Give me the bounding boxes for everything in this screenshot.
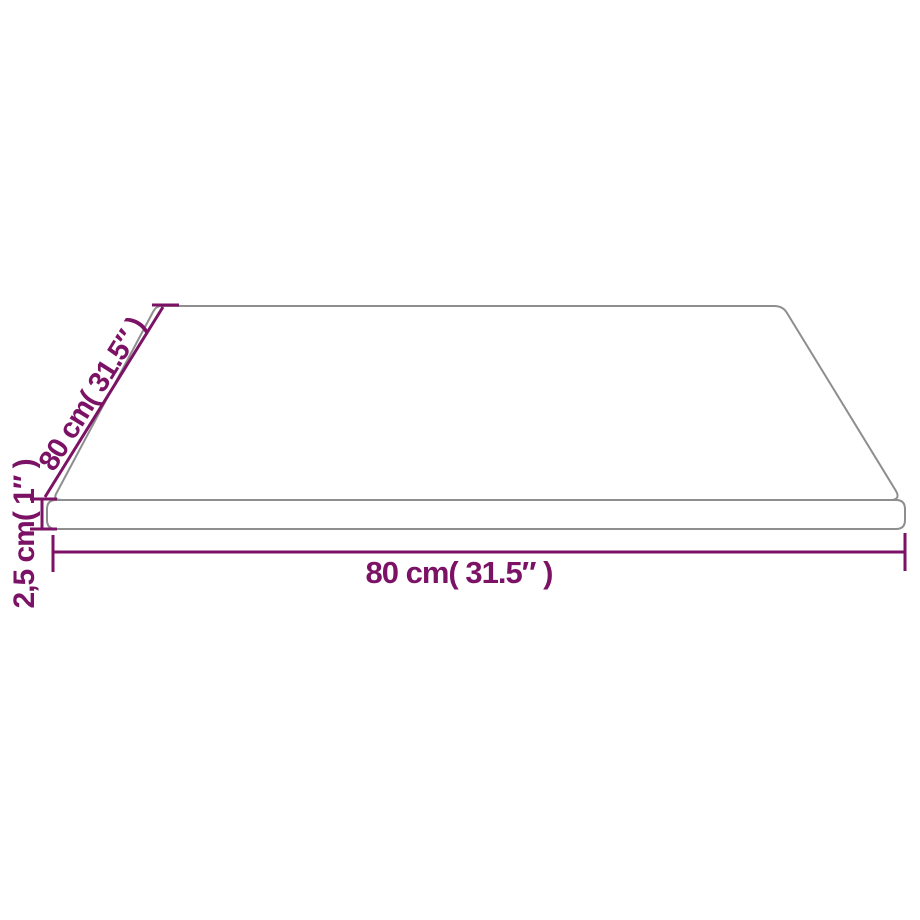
dimension-diagram: 80 cm( 31.5″ ) 2,5 cm( 1″ ) 80 cm( 31.5″… — [0, 0, 920, 920]
width-dimension-label: 80 cm( 31.5″ ) — [366, 555, 553, 590]
panel-front-face — [47, 500, 905, 529]
panel-top-face — [55, 306, 897, 500]
thickness-dimension-label: 2,5 cm( 1″ ) — [8, 459, 41, 608]
product-dimension-image: 80 cm( 31.5″ ) 2,5 cm( 1″ ) 80 cm( 31.5″… — [0, 0, 920, 920]
table-top-panel — [47, 306, 905, 529]
